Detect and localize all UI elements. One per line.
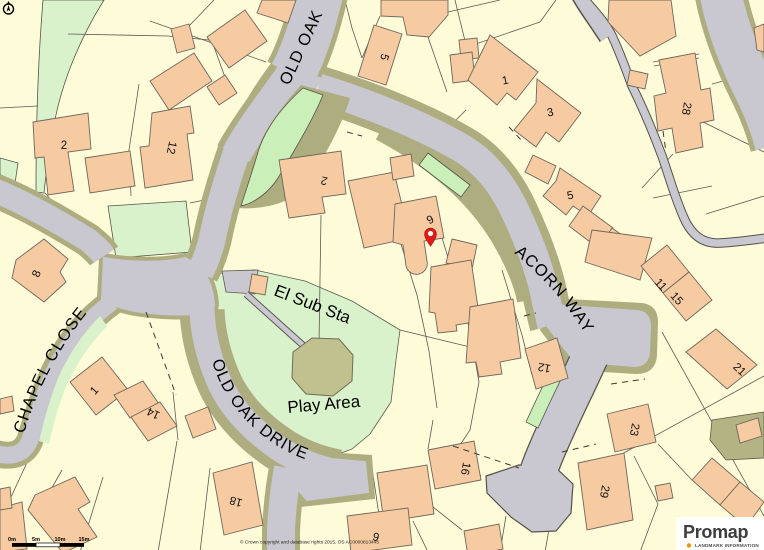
svg-text:© Crown copyright and database: © Crown copyright and database rights 20… [240,539,379,546]
svg-text:5m: 5m [32,537,40,543]
svg-text:12: 12 [537,360,552,374]
svg-text:28: 28 [679,101,693,116]
svg-text:16: 16 [458,461,472,476]
svg-text:29: 29 [597,484,611,499]
svg-text:10m: 10m [54,537,65,543]
svg-text:23: 23 [627,422,641,437]
svg-text:LANDMARK INFORMATION: LANDMARK INFORMATION [695,543,759,548]
svg-text:Promap: Promap [683,522,749,542]
svg-text:0m: 0m [8,537,16,543]
svg-text:2: 2 [61,140,67,152]
svg-text:15m: 15m [78,537,89,543]
